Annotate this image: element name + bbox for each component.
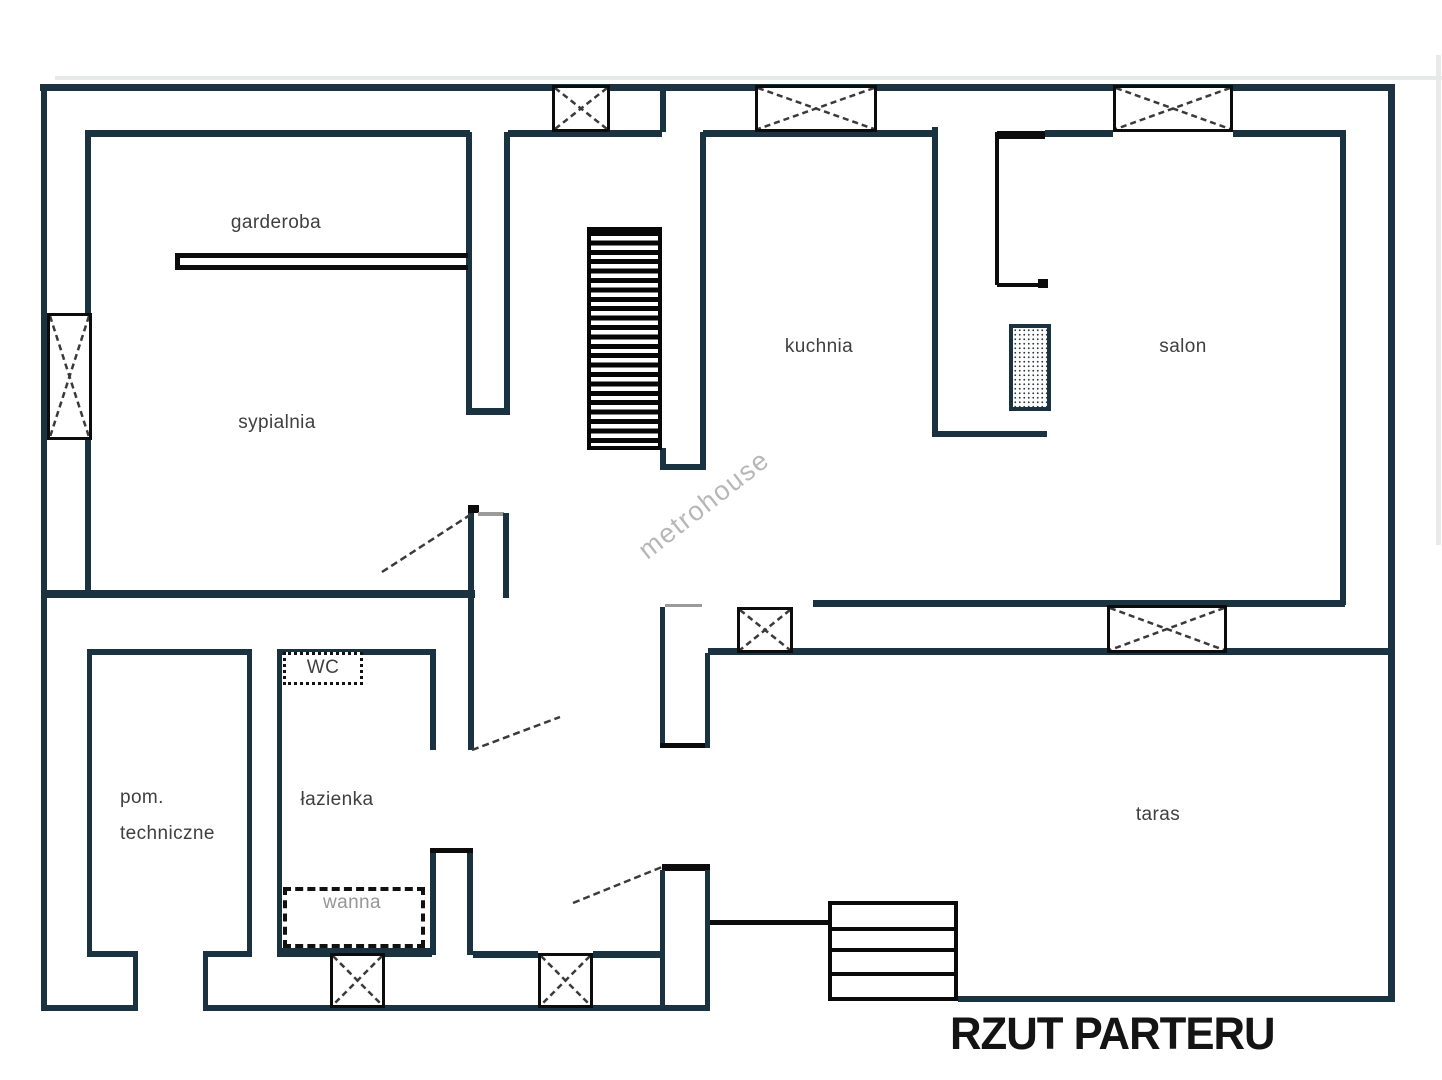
room-label-kuchnia: kuchnia (785, 336, 853, 358)
room-label-wc: WC (307, 657, 339, 679)
room-label-wanna: wanna (323, 892, 381, 914)
room-label-salon: salon (1159, 336, 1206, 358)
door-swing-lines (0, 0, 1442, 1080)
plan-title: RZUT PARTERU (950, 1008, 1275, 1060)
room-label-garderoba: garderoba (231, 212, 321, 234)
room-label-taras: taras (1136, 804, 1180, 826)
room-label-pom-techniczne: pom. techniczne (120, 780, 215, 852)
room-label-lazienka: łazienka (301, 789, 374, 811)
room-label-sypialnia: sypialnia (238, 412, 316, 434)
floorplan-canvas: garderobasypialniakuchniasalonWCłazienka… (0, 0, 1442, 1080)
